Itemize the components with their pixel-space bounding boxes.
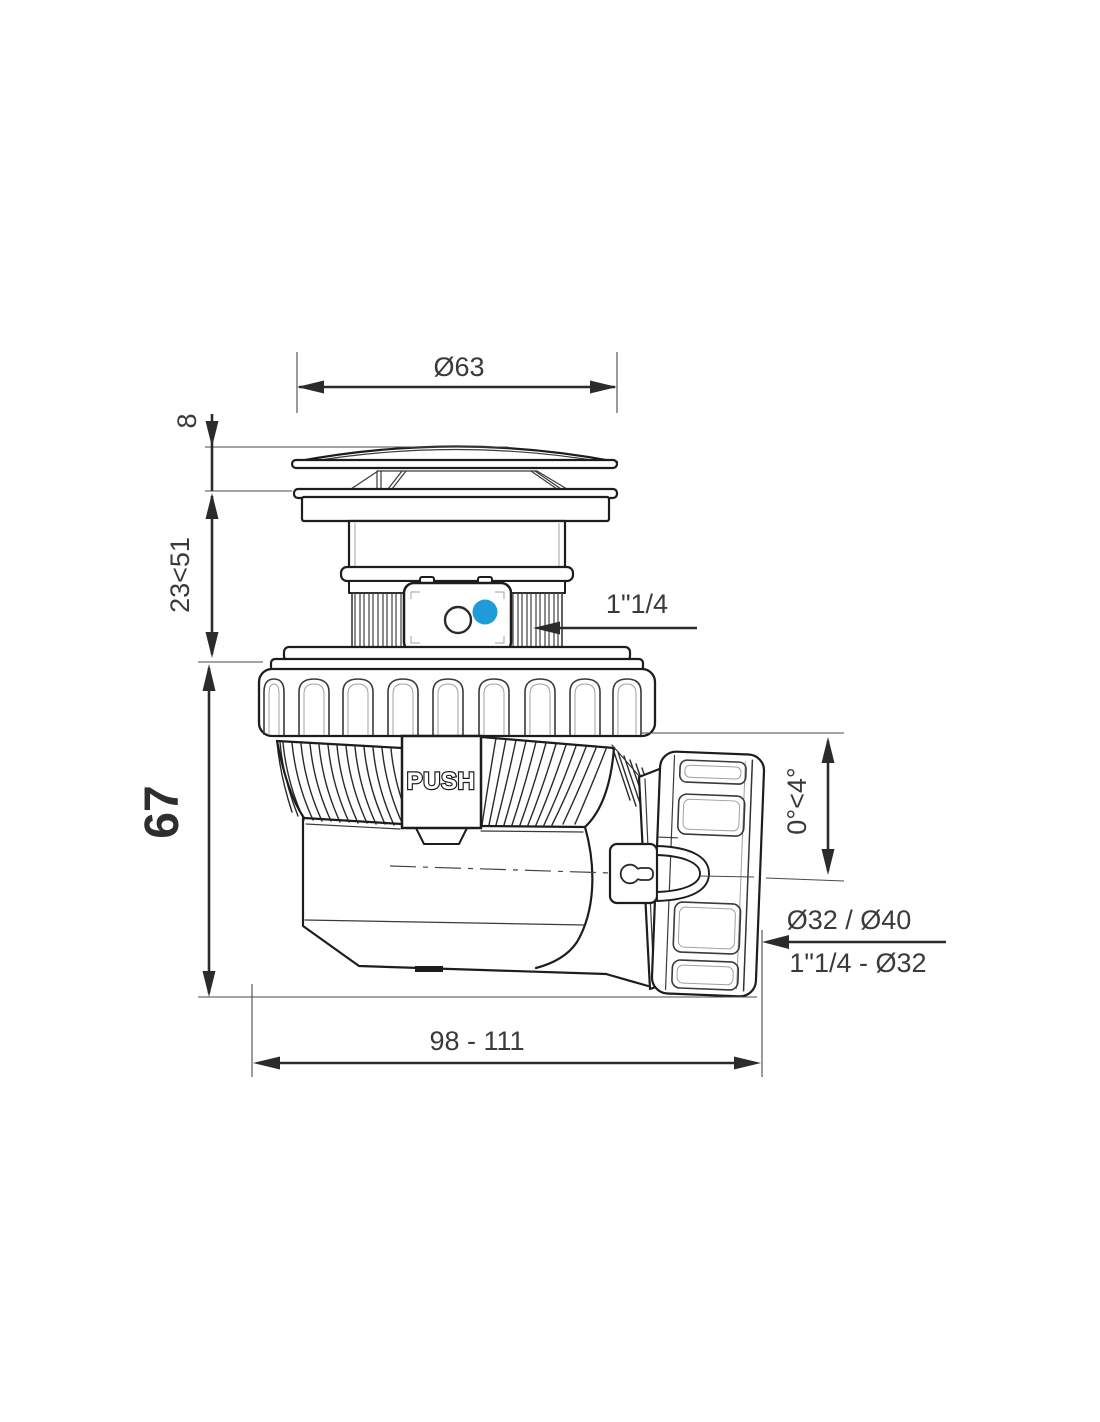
outlet-sizes-label: Ø32 / Ø40 — [787, 905, 912, 935]
dimension-adjust-height: 23<51 — [165, 493, 219, 658]
arrowhead-right — [590, 381, 617, 394]
cap-diameter-label: Ø63 — [433, 352, 484, 382]
waste-trap-technical-drawing: PUSH — [0, 0, 1100, 1422]
body-foot — [415, 966, 443, 972]
arrowhead-down — [206, 632, 219, 658]
arrowhead-up — [206, 493, 219, 519]
dimension-outlet-sizes: Ø32 / Ø40 1"1/4 - Ø32 — [762, 905, 946, 978]
inlet-thread-label: 1"1/4 — [606, 589, 668, 619]
arrowhead-right — [734, 1057, 761, 1070]
overall-length-label: 98 - 111 — [429, 1026, 524, 1056]
body-height-label: 67 — [136, 785, 189, 838]
arrowhead-left — [762, 935, 789, 949]
arrowhead-up — [203, 664, 216, 691]
arrowhead-down — [206, 421, 219, 447]
arrowhead-left — [533, 622, 560, 635]
keyhole-tab — [610, 844, 657, 903]
outlet-thread-label: 1"1/4 - Ø32 — [789, 948, 926, 978]
adjust-height-label: 23<51 — [165, 537, 195, 613]
push-button-label: PUSH — [407, 768, 476, 795]
cartridge-plate — [404, 577, 511, 658]
dimension-cap-diameter: Ø63 — [297, 352, 617, 413]
drawing-canvas: PUSH — [0, 0, 1100, 1422]
indicator-ring — [445, 607, 471, 633]
dimension-cap-height: 8 — [172, 413, 508, 491]
arrowhead-down — [822, 849, 835, 875]
flange — [294, 489, 617, 521]
arrowhead-down — [203, 971, 216, 997]
outlet-angle-label: 0°<4° — [782, 767, 812, 834]
blue-indicator-dot — [473, 600, 498, 625]
arrowhead-left — [253, 1057, 280, 1070]
ring-nut — [259, 669, 655, 736]
push-button: PUSH — [402, 736, 481, 844]
cap-height-label: 8 — [172, 413, 202, 428]
cap-dome — [292, 447, 617, 469]
trap-flange — [271, 647, 643, 671]
arrowhead-up — [822, 737, 835, 763]
arrowhead-left — [297, 381, 324, 394]
cap-underside-spokes — [351, 471, 567, 489]
